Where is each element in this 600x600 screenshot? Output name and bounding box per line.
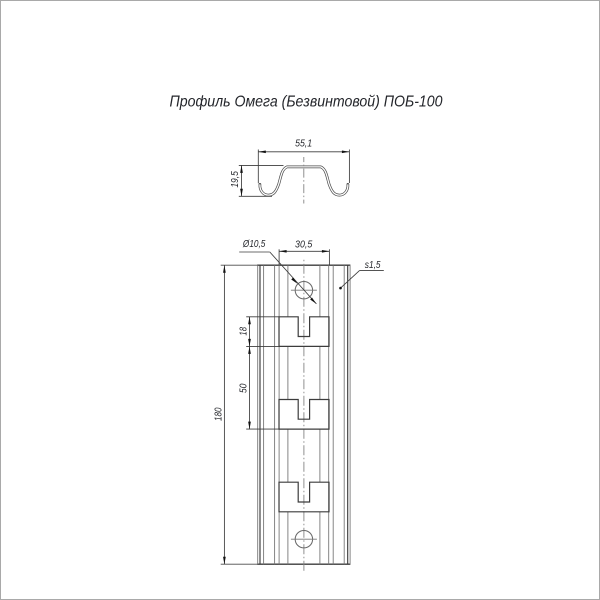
svg-text:18: 18 [238, 327, 249, 336]
svg-text:Профиль Омега (Безвинтовой) ПО: Профиль Омега (Безвинтовой) ПОБ-100 [170, 94, 443, 111]
svg-text:30,5: 30,5 [295, 240, 313, 251]
svg-text:s1,5: s1,5 [365, 260, 381, 271]
svg-text:180: 180 [213, 407, 224, 421]
svg-text:55,1: 55,1 [295, 139, 312, 150]
svg-text:50: 50 [238, 383, 249, 393]
svg-text:Ø10,5: Ø10,5 [242, 239, 266, 250]
svg-text:19,5: 19,5 [230, 171, 241, 188]
